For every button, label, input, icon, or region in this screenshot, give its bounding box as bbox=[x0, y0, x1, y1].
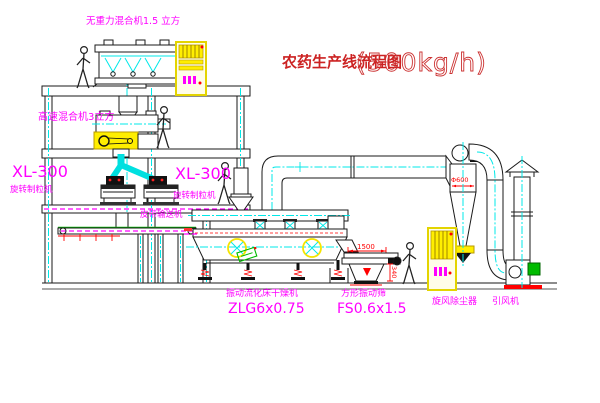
control-cabinet-upper bbox=[176, 42, 206, 95]
dim-cyclone-diameter: Φ600 bbox=[451, 176, 469, 184]
diagram-title-capacity: (500kg/h) bbox=[356, 48, 487, 77]
control-cabinet-lower bbox=[428, 228, 456, 290]
label-sieve-name: 方形振动筛 bbox=[341, 287, 386, 299]
cabinet-marking bbox=[434, 267, 437, 276]
granulator-left bbox=[100, 176, 136, 205]
dryer-feed-funnel bbox=[229, 168, 253, 210]
label-sieve-model: FS0.6x1.5 bbox=[337, 301, 407, 317]
dim-sieve-length: 1500 bbox=[357, 243, 375, 251]
diagram-canvas: 无重力混合机1.5 立方 农药生产线流程图 (500kg/h) 高速混合机3立方… bbox=[0, 0, 600, 403]
label-dryer-model: ZLG6x0.75 bbox=[228, 301, 305, 317]
high-speed-mixer bbox=[92, 96, 170, 157]
label-granulator-right-name: 旋转制粒机 bbox=[173, 190, 216, 201]
exhaust-duct bbox=[262, 156, 446, 210]
cabinet-indicator-dot bbox=[450, 233, 453, 236]
label-granulator-right-model: XL-300 bbox=[175, 164, 231, 183]
label-belt-conveyor: 皮带输送机 bbox=[140, 209, 183, 220]
fan-motor bbox=[528, 263, 540, 275]
person-figure bbox=[403, 243, 416, 284]
ground-line bbox=[42, 283, 557, 289]
belt-conveyor bbox=[58, 213, 196, 283]
cad-flow-diagram: 无重力混合机1.5 立方 农药生产线流程图 (500kg/h) 高速混合机3立方… bbox=[0, 0, 600, 403]
cabinet-marking bbox=[183, 76, 186, 84]
person-figure bbox=[77, 47, 90, 88]
label-dryer-name: 振动流化床干燥机 bbox=[226, 287, 298, 299]
label-granulator-left-model: XL-300 bbox=[12, 162, 68, 181]
label-cyclone: 旋风除尘器 bbox=[432, 295, 477, 307]
label-high-speed-mixer: 高速混合机3立方 bbox=[38, 110, 114, 123]
dim-sieve-height: 340 bbox=[390, 266, 398, 278]
induced-draft-fan bbox=[504, 260, 542, 289]
label-granulator-left-name: 旋转制粒机 bbox=[10, 184, 53, 195]
cabinet-indicator-dot bbox=[201, 46, 204, 49]
label-fan: 引风机 bbox=[492, 295, 519, 307]
label-gravity-free-mixer: 无重力混合机1.5 立方 bbox=[86, 15, 180, 27]
